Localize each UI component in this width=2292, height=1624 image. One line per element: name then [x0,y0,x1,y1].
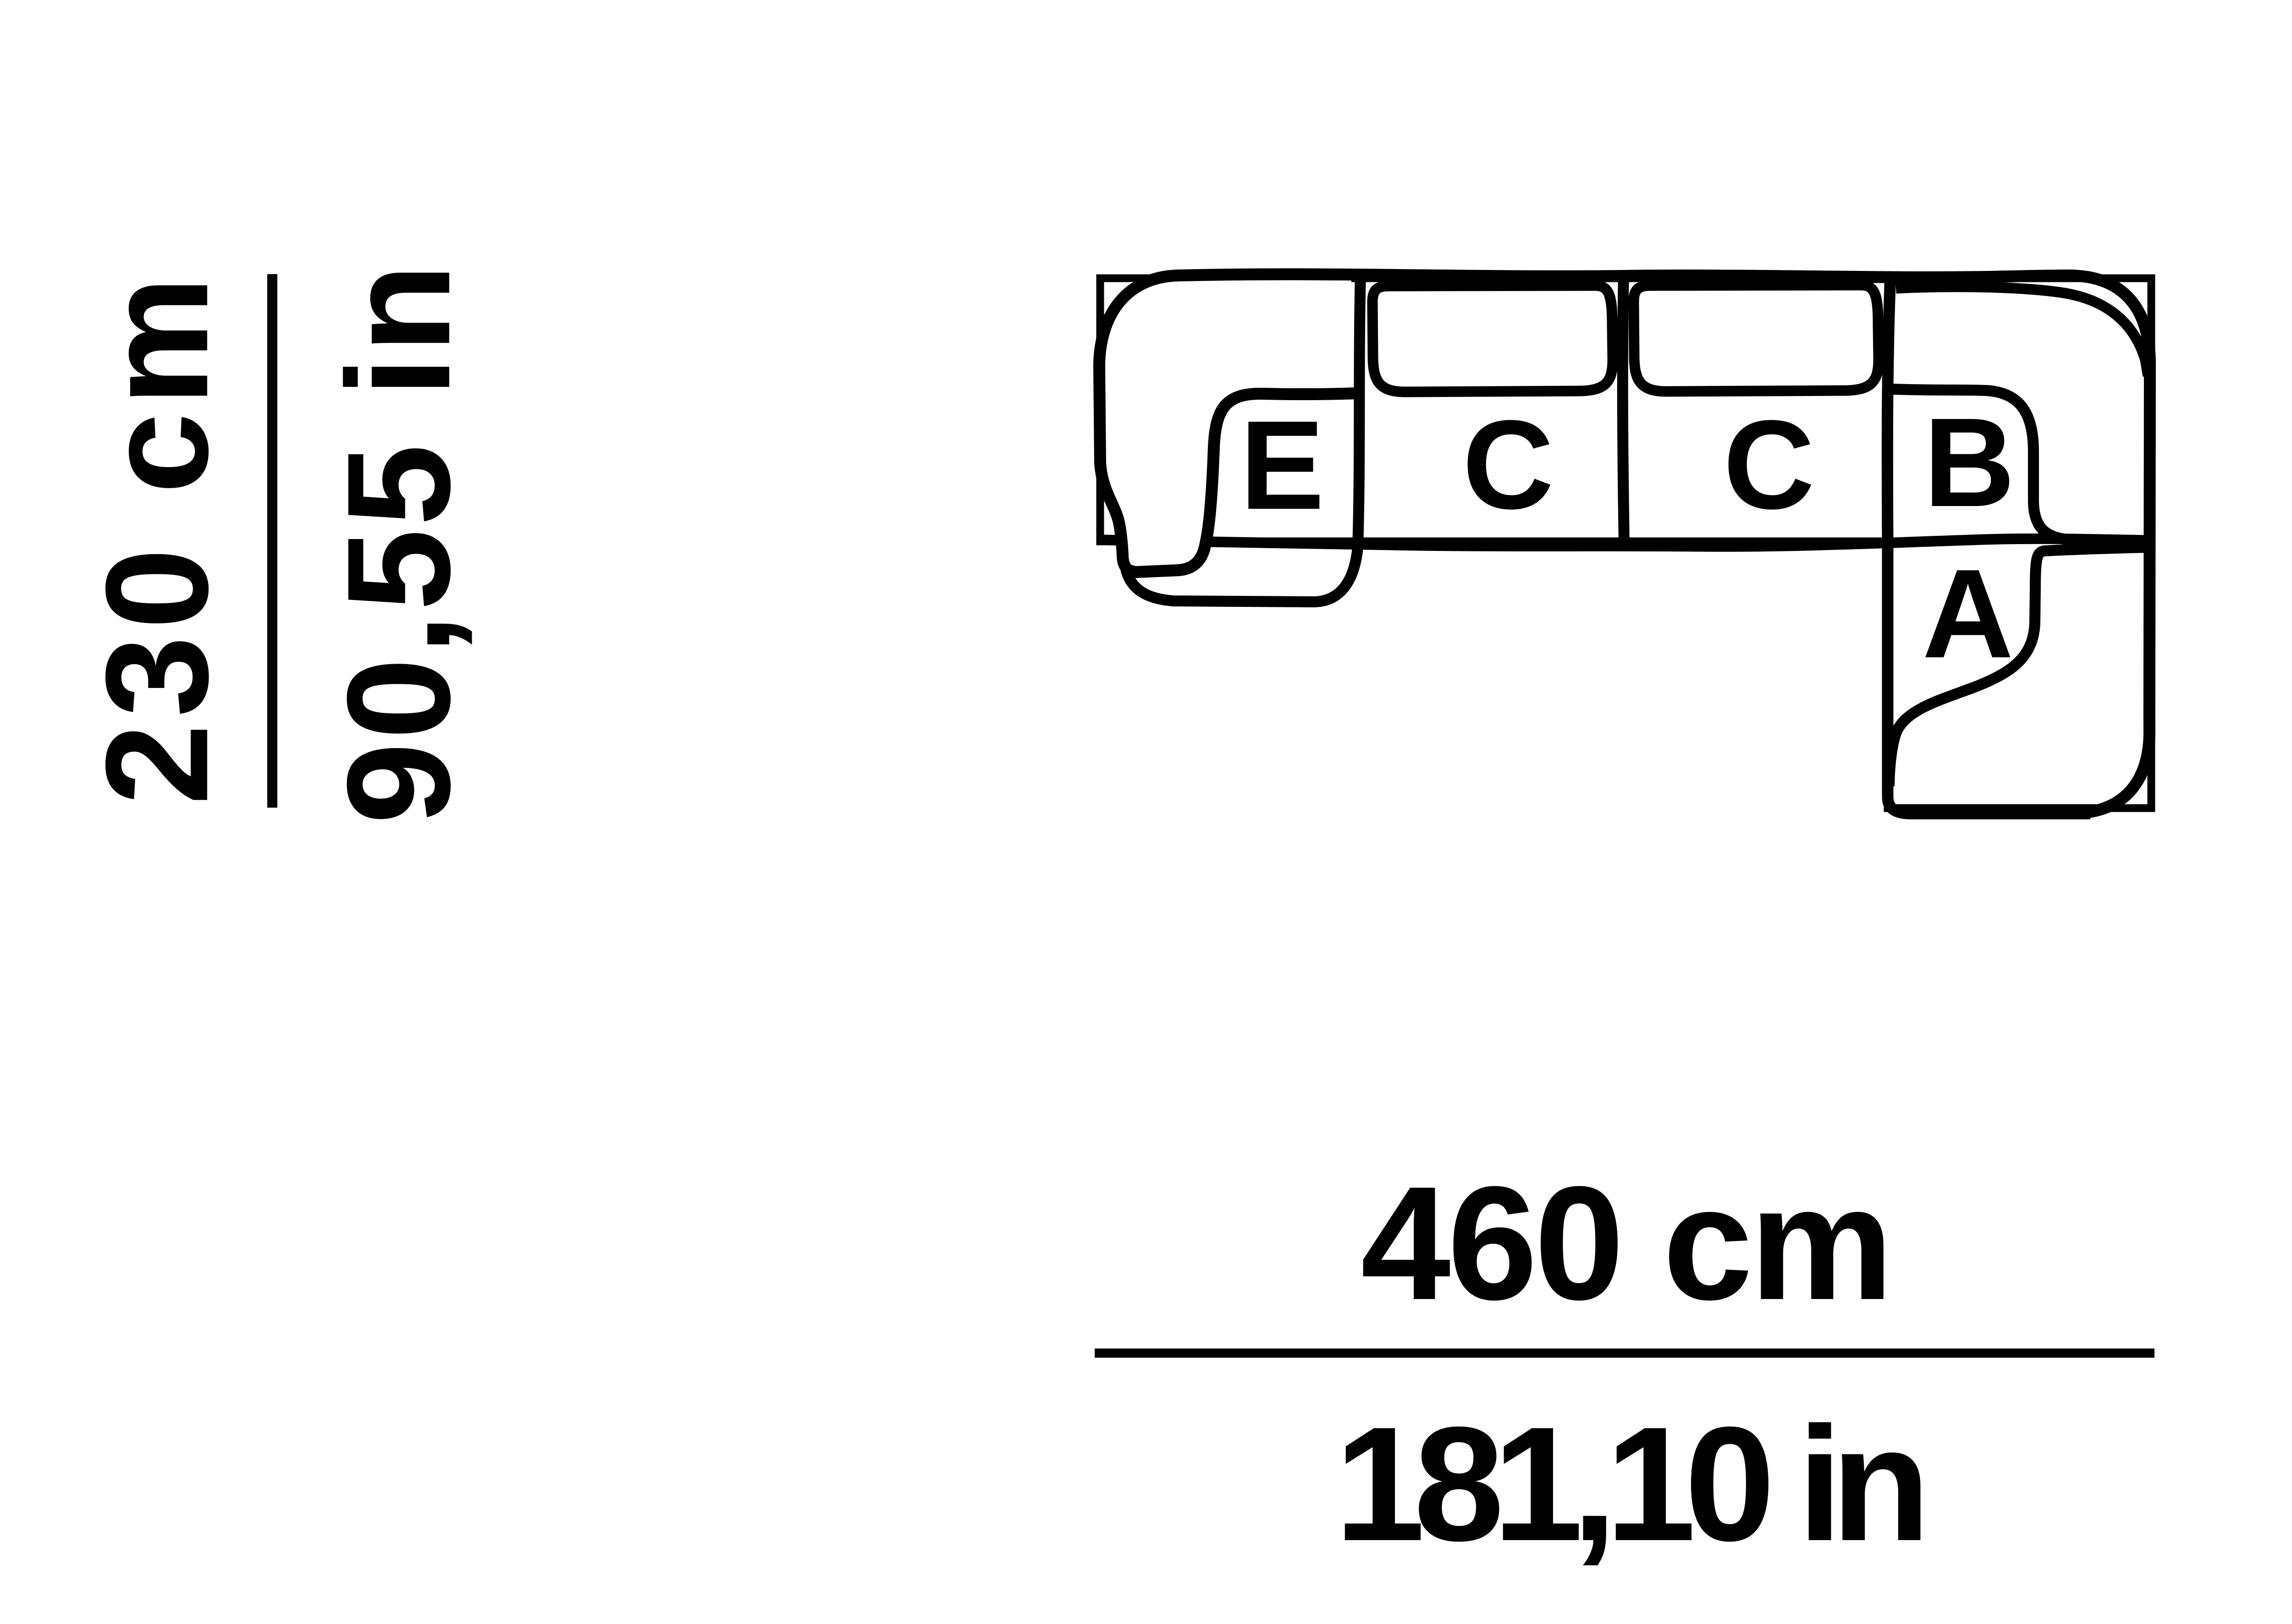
svg-text:C: C [1462,394,1554,535]
svg-text:460 cm: 460 cm [1361,1152,1890,1333]
svg-text:E: E [1240,395,1324,536]
svg-text:C: C [1723,394,1814,535]
svg-text:90,55 in: 90,55 in [316,260,480,824]
svg-text:A: A [1922,543,2013,684]
svg-text:B: B [1923,392,2015,533]
svg-text:181,10 in: 181,10 in [1335,1393,1923,1575]
svg-text:230 cm: 230 cm [76,270,238,805]
